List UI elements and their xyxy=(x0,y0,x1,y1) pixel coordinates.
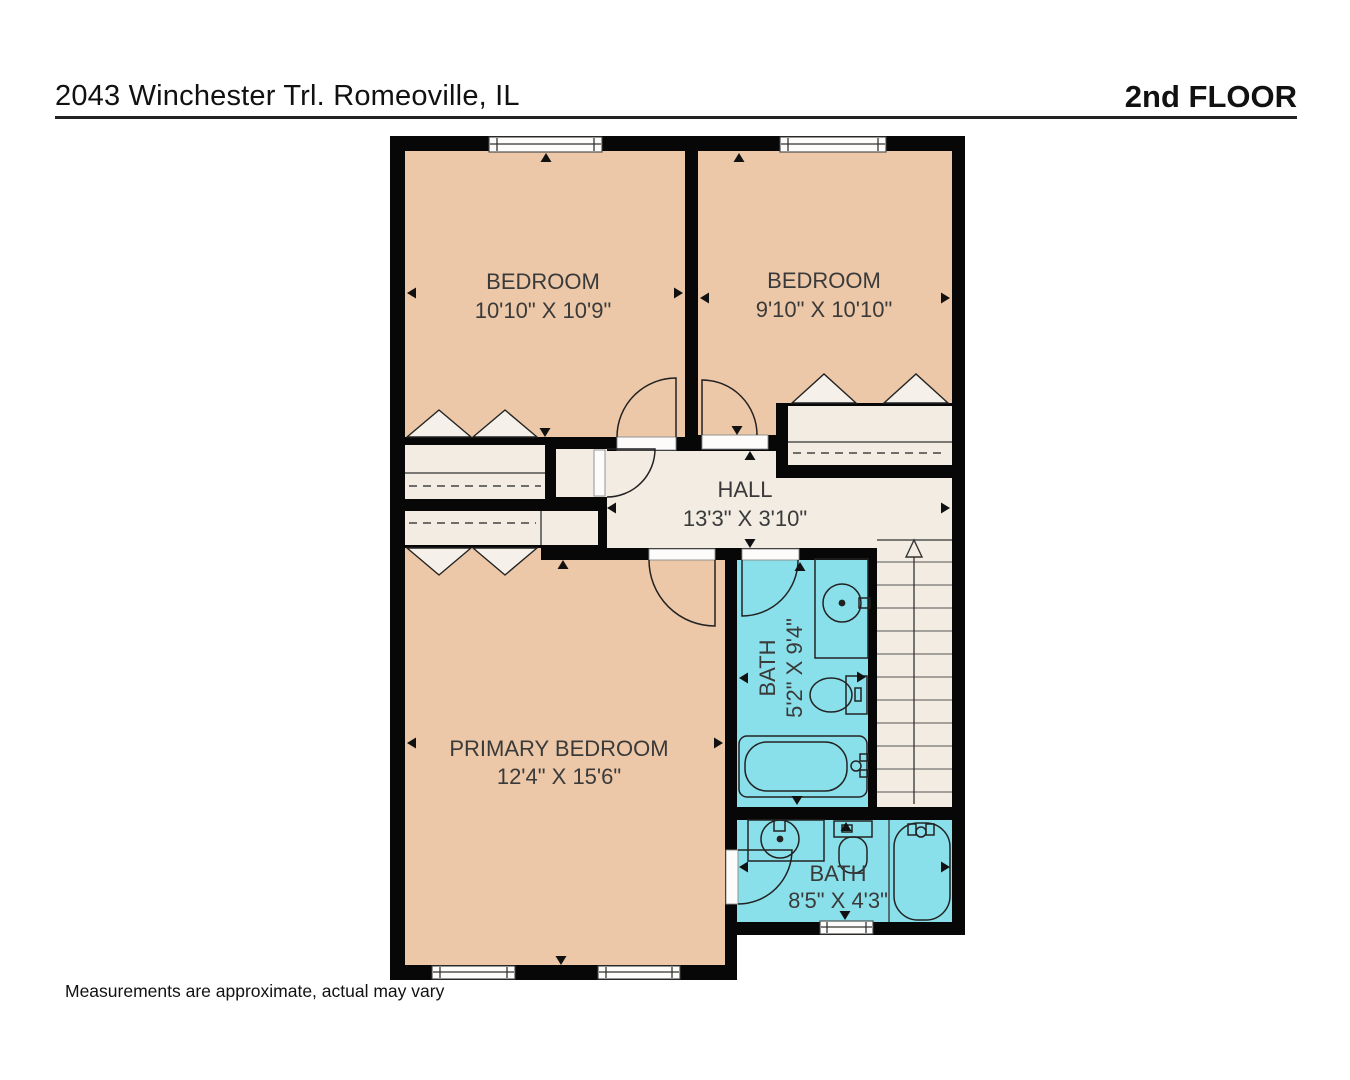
bedroom-1-dimensions: 10'10" X 10'9" xyxy=(475,298,612,323)
hall-dimensions: 13'3" X 3'10" xyxy=(683,506,807,531)
window-bedroom-2 xyxy=(780,137,886,152)
bath-1-dimensions: 5'2" X 9'4" xyxy=(782,618,807,718)
bath-1-name: BATH xyxy=(755,639,780,696)
bedroom-2-dimensions: 9'10" X 10'10" xyxy=(756,297,893,322)
room-bedroom-1-floor xyxy=(405,151,685,437)
window-primary-right xyxy=(598,966,680,979)
bedroom-2-closet-floor xyxy=(788,406,952,465)
bath-2-dimensions: 8'5" X 4'3" xyxy=(788,888,888,913)
floor-plan-drawing: BEDROOM 10'10" X 10'9" BEDROOM 9'10" X 1… xyxy=(0,0,1350,1080)
floor-plan-page: 2043 Winchester Trl. Romeoville, IL 2nd … xyxy=(0,0,1350,1080)
disclaimer-text: Measurements are approximate, actual may… xyxy=(65,981,444,1002)
primary-closet-floor xyxy=(405,511,598,545)
primary-bedroom-dimensions: 12'4" X 15'6" xyxy=(497,764,621,789)
primary-bedroom-name: PRIMARY BEDROOM xyxy=(449,736,668,761)
hall-name: HALL xyxy=(717,477,772,502)
window-bath-2 xyxy=(820,921,873,934)
bedroom-1-closet-floor xyxy=(405,445,545,499)
window-bedroom-1 xyxy=(489,137,602,152)
bedroom-2-name: BEDROOM xyxy=(767,268,881,293)
window-primary-left xyxy=(432,966,515,979)
bath-2-name: BATH xyxy=(809,861,866,886)
bedroom-1-name: BEDROOM xyxy=(486,269,600,294)
